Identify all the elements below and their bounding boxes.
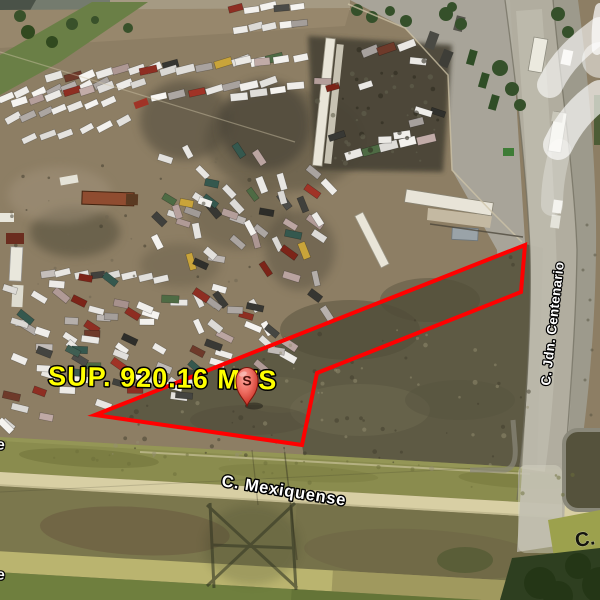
ground-speckle bbox=[391, 75, 394, 78]
ground-speckle bbox=[380, 72, 383, 75]
ground-speckle bbox=[321, 419, 324, 422]
ground-speckle bbox=[146, 405, 148, 407]
ground-speckle bbox=[477, 403, 479, 405]
ground-speckle bbox=[232, 410, 234, 412]
ground-speckle bbox=[109, 454, 111, 456]
ground-speckle bbox=[295, 462, 298, 465]
ground-speckle bbox=[10, 210, 13, 213]
ground-speckle bbox=[378, 93, 383, 98]
ground-speckle bbox=[289, 344, 293, 348]
ground-speckle bbox=[425, 334, 428, 337]
ground-speckle bbox=[416, 337, 419, 340]
ground-speckle bbox=[252, 425, 255, 428]
ground-speckle bbox=[105, 215, 109, 219]
ground-speckle bbox=[271, 472, 273, 474]
ground-speckle bbox=[350, 375, 354, 379]
ground-speckle bbox=[234, 279, 238, 283]
ground-speckle bbox=[361, 367, 363, 369]
ground-speckle bbox=[436, 119, 439, 122]
pin-letter: S bbox=[242, 373, 251, 389]
ground-speckle bbox=[152, 452, 156, 456]
ground-speckle bbox=[111, 259, 114, 262]
ground-speckle bbox=[195, 401, 199, 405]
ground-speckle bbox=[334, 418, 339, 423]
ground-speckle bbox=[424, 100, 428, 104]
ground-speckle bbox=[376, 465, 380, 469]
ground-speckle bbox=[163, 455, 166, 458]
ground-speckle bbox=[130, 238, 132, 240]
junkyard-vehicle bbox=[64, 317, 78, 325]
ground-speckle bbox=[372, 449, 377, 454]
ground-speckle bbox=[520, 396, 522, 398]
ground-speckle bbox=[235, 453, 239, 457]
ground-speckle bbox=[160, 178, 162, 180]
ground-speckle bbox=[492, 455, 494, 457]
junkyard-vehicle bbox=[254, 57, 270, 66]
ground-speckle bbox=[112, 453, 114, 455]
ground-speckle bbox=[113, 443, 118, 448]
ground-speckle bbox=[14, 244, 18, 248]
ground-speckle bbox=[418, 464, 420, 466]
ground-speckle bbox=[557, 476, 561, 480]
ground-speckle bbox=[91, 457, 95, 461]
ground-speckle bbox=[334, 369, 337, 372]
ground-speckle bbox=[342, 98, 344, 100]
ground-speckle bbox=[205, 452, 207, 454]
ground-speckle bbox=[315, 98, 320, 103]
ground-speckle bbox=[321, 382, 325, 386]
ground-speckle bbox=[414, 319, 416, 321]
ground-speckle bbox=[381, 121, 384, 124]
ground-speckle bbox=[411, 108, 414, 111]
ground-speckle bbox=[521, 491, 525, 495]
ground-speckle bbox=[431, 87, 436, 92]
ground-speckle bbox=[296, 171, 298, 173]
ground-speckle bbox=[391, 150, 394, 153]
ground-speckle bbox=[335, 83, 338, 86]
ground-speckle bbox=[202, 202, 206, 206]
ground-speckle bbox=[247, 178, 251, 182]
ground-speckle bbox=[394, 429, 396, 431]
ground-speckle bbox=[343, 161, 348, 166]
ground-speckle bbox=[10, 214, 14, 218]
ground-speckle bbox=[410, 84, 414, 88]
junkyard-vehicle bbox=[139, 319, 154, 325]
ground-speckle bbox=[127, 462, 131, 466]
ground-speckle bbox=[250, 216, 252, 218]
ground-speckle bbox=[355, 78, 359, 82]
ground-speckle bbox=[473, 348, 477, 352]
ground-speckle bbox=[303, 461, 305, 463]
junkyard-vehicle bbox=[291, 19, 308, 27]
ground-speckle bbox=[37, 283, 38, 284]
ground-speckle bbox=[353, 379, 357, 383]
junkyard-vehicle bbox=[230, 92, 248, 101]
ground-speckle bbox=[321, 392, 323, 394]
ground-speckle bbox=[407, 114, 409, 116]
ground-speckle bbox=[124, 214, 127, 217]
ground-speckle bbox=[417, 383, 420, 386]
junkyard-vehicle bbox=[287, 81, 305, 90]
ground-speckle bbox=[123, 436, 127, 440]
junkyard-vehicle bbox=[274, 4, 290, 12]
ground-speckle bbox=[238, 415, 243, 420]
ground-speckle bbox=[48, 200, 49, 201]
ground-speckle bbox=[489, 463, 492, 466]
ground-speckle bbox=[67, 233, 70, 236]
ground-speckle bbox=[555, 474, 558, 477]
street-label-corner: C. bbox=[574, 527, 597, 552]
ground-speckle bbox=[21, 175, 24, 178]
ground-speckle bbox=[359, 416, 363, 420]
junkyard-vehicle bbox=[104, 313, 118, 320]
ground-speckle bbox=[215, 161, 217, 163]
junkyard-vehicle bbox=[49, 280, 65, 289]
ground-speckle bbox=[134, 409, 139, 414]
ground-speckle bbox=[357, 47, 362, 52]
ground-speckle bbox=[26, 209, 28, 211]
ground-speckle bbox=[428, 74, 433, 79]
satellite-canvas[interactable]: C. Mexiquense C. Jdn. Centenario e e C. … bbox=[0, 0, 600, 600]
ground-speckle bbox=[244, 453, 248, 457]
ground-speckle bbox=[279, 352, 282, 355]
ground-speckle bbox=[526, 406, 529, 409]
ground-speckle bbox=[421, 59, 426, 64]
ground-speckle bbox=[75, 450, 79, 454]
ground-speckle bbox=[262, 471, 265, 474]
ground-speckle bbox=[364, 77, 368, 81]
ground-speckle bbox=[511, 263, 515, 267]
ground-speckle bbox=[392, 461, 394, 463]
ground-speckle bbox=[229, 459, 231, 461]
ground-speckle bbox=[300, 401, 302, 403]
ground-speckle bbox=[346, 142, 350, 146]
ground-speckle bbox=[473, 380, 478, 385]
ground-speckle bbox=[397, 131, 401, 135]
ground-speckle bbox=[446, 432, 448, 434]
ground-speckle bbox=[271, 434, 273, 436]
ground-speckle bbox=[378, 457, 380, 459]
ground-speckle bbox=[433, 129, 435, 131]
ground-speckle bbox=[232, 422, 234, 424]
ground-speckle bbox=[458, 396, 461, 399]
ground-speckle bbox=[410, 376, 412, 378]
ground-speckle bbox=[501, 433, 506, 438]
ground-speckle bbox=[411, 467, 415, 471]
ground-speckle bbox=[303, 451, 307, 455]
ground-speckle bbox=[308, 481, 312, 485]
ground-speckle bbox=[53, 457, 55, 459]
ground-speckle bbox=[142, 437, 147, 442]
ground-speckle bbox=[283, 449, 286, 452]
ground-speckle bbox=[393, 85, 397, 89]
ground-speckle bbox=[89, 296, 92, 299]
ground-speckle bbox=[215, 157, 218, 160]
ground-speckle bbox=[228, 281, 230, 283]
satellite-map[interactable]: C. Mexiquense C. Jdn. Centenario e e C. … bbox=[0, 0, 600, 600]
ground-speckle bbox=[405, 136, 409, 140]
ground-speckle bbox=[262, 358, 265, 361]
ground-speckle bbox=[334, 157, 337, 160]
ground-speckle bbox=[317, 332, 322, 337]
ground-speckle bbox=[368, 147, 373, 152]
ground-speckle bbox=[367, 107, 370, 110]
ground-speckle bbox=[362, 428, 366, 432]
ground-speckle bbox=[99, 225, 103, 229]
ground-speckle bbox=[263, 421, 267, 425]
ground-speckle bbox=[264, 461, 268, 465]
ground-speckle bbox=[496, 385, 499, 388]
ground-speckle bbox=[571, 473, 575, 477]
ground-speckle bbox=[527, 390, 531, 394]
ground-speckle bbox=[346, 460, 348, 462]
ground-speckle bbox=[393, 71, 397, 75]
ground-speckle bbox=[417, 114, 421, 118]
ground-speckle bbox=[101, 164, 104, 167]
ground-speckle bbox=[331, 113, 336, 118]
ground-speckle bbox=[248, 266, 250, 268]
ground-speckle bbox=[173, 472, 177, 476]
junkyard-vehicle bbox=[161, 295, 179, 303]
ground-speckle bbox=[54, 267, 57, 270]
ground-speckle bbox=[494, 364, 497, 367]
ground-speckle bbox=[429, 466, 434, 471]
ground-speckle bbox=[344, 435, 347, 438]
ground-speckle bbox=[285, 379, 289, 383]
ground-speckle bbox=[356, 119, 358, 121]
ground-speckle bbox=[416, 152, 418, 154]
ground-speckle bbox=[197, 275, 200, 278]
ground-speckle bbox=[400, 451, 403, 454]
ground-speckle bbox=[471, 433, 474, 436]
ground-speckle bbox=[381, 427, 385, 431]
ground-speckle bbox=[342, 160, 344, 162]
ground-speckle bbox=[181, 410, 184, 413]
ground-speckle bbox=[134, 447, 136, 449]
ground-speckle bbox=[419, 160, 421, 162]
ground-speckle bbox=[413, 75, 416, 78]
ground-speckle bbox=[396, 329, 398, 331]
ground-speckle bbox=[382, 340, 384, 342]
ground-speckle bbox=[509, 255, 513, 259]
ground-speckle bbox=[121, 469, 124, 472]
ground-speckle bbox=[360, 134, 365, 139]
ground-speckle bbox=[318, 392, 320, 394]
ground-speckle bbox=[137, 423, 139, 425]
ground-speckle bbox=[133, 275, 136, 278]
ground-speckle bbox=[350, 71, 355, 76]
ground-speckle bbox=[210, 444, 214, 448]
ground-speckle bbox=[356, 107, 359, 110]
ground-speckle bbox=[471, 486, 473, 488]
ground-speckle bbox=[293, 368, 295, 370]
ground-speckle bbox=[361, 111, 366, 116]
junkyard-vehicle bbox=[378, 136, 392, 143]
ground-speckle bbox=[497, 382, 500, 385]
ground-speckle bbox=[345, 416, 349, 420]
ground-speckle bbox=[423, 343, 428, 348]
ground-speckle bbox=[143, 245, 146, 248]
ground-speckle bbox=[501, 425, 505, 429]
ground-speckle bbox=[561, 493, 565, 497]
ground-speckle bbox=[348, 152, 351, 155]
ground-speckle bbox=[362, 419, 365, 422]
junkyard-vehicle bbox=[314, 78, 332, 85]
ground-speckle bbox=[48, 177, 51, 180]
ground-speckle bbox=[96, 459, 99, 462]
ground-speckle bbox=[217, 438, 220, 441]
junkyard-vehicle bbox=[227, 306, 243, 314]
ground-speckle bbox=[331, 469, 333, 471]
ground-speckle bbox=[240, 452, 243, 455]
ground-speckle bbox=[186, 453, 189, 456]
ground-speckle bbox=[404, 357, 407, 360]
ground-speckle bbox=[385, 90, 388, 93]
ground-speckle bbox=[136, 441, 139, 444]
